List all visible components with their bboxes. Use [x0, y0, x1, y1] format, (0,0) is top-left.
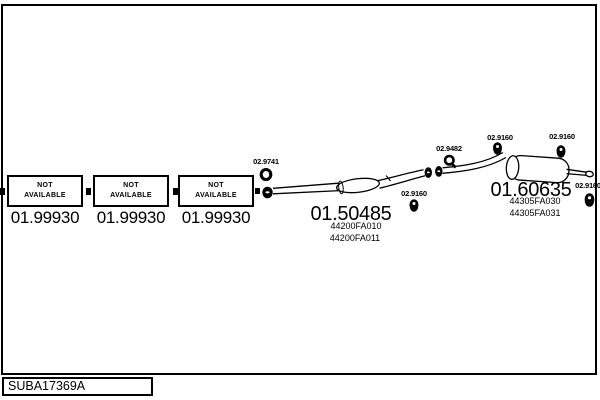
- hanger-part-label: 02.9160: [540, 132, 584, 141]
- hanger-icon: [410, 199, 419, 211]
- gasket-part-label: 02.9741: [244, 157, 288, 166]
- not-available-text: NOT: [37, 181, 53, 192]
- diagram-code-box: SUBA17369A: [2, 377, 153, 396]
- flange-icon: [425, 167, 432, 178]
- oem-ref-label: 44200FA011: [300, 233, 410, 243]
- not-available-box: NOT AVAILABLE: [93, 175, 169, 207]
- hanger-part-label: 02.9160: [478, 133, 522, 142]
- hanger-icon: [493, 142, 502, 154]
- part-number-label: 01.99930: [93, 208, 169, 228]
- not-available-box: NOT AVAILABLE: [7, 175, 83, 207]
- flange-icon: [435, 166, 442, 177]
- part-number-label: 01.99930: [7, 208, 83, 228]
- not-available-box: NOT AVAILABLE: [178, 175, 254, 207]
- not-available-text: AVAILABLE: [110, 191, 152, 202]
- not-available-text: NOT: [123, 181, 139, 192]
- gasket-icon: [261, 170, 271, 180]
- exhaust-parts-diagram: NOT AVAILABLE NOT AVAILABLE NOT AVAILABL…: [0, 0, 600, 400]
- part-number-label: 01.99930: [178, 208, 254, 228]
- hanger-part-label: 02.9160: [392, 189, 436, 198]
- not-available-text: NOT: [208, 181, 224, 192]
- oem-ref-label: 44305FA031: [480, 208, 590, 218]
- clamp-icon: [445, 156, 456, 168]
- clamp-part-label: 02.9482: [427, 144, 471, 153]
- diagram-code: SUBA17369A: [8, 379, 85, 393]
- oem-ref-label: 44305FA030: [480, 196, 590, 206]
- flange-icon: [262, 187, 272, 199]
- oem-ref-label: 44200FA010: [301, 221, 411, 231]
- not-available-text: AVAILABLE: [24, 191, 66, 202]
- not-available-text: AVAILABLE: [195, 191, 237, 202]
- hanger-icon: [557, 145, 566, 157]
